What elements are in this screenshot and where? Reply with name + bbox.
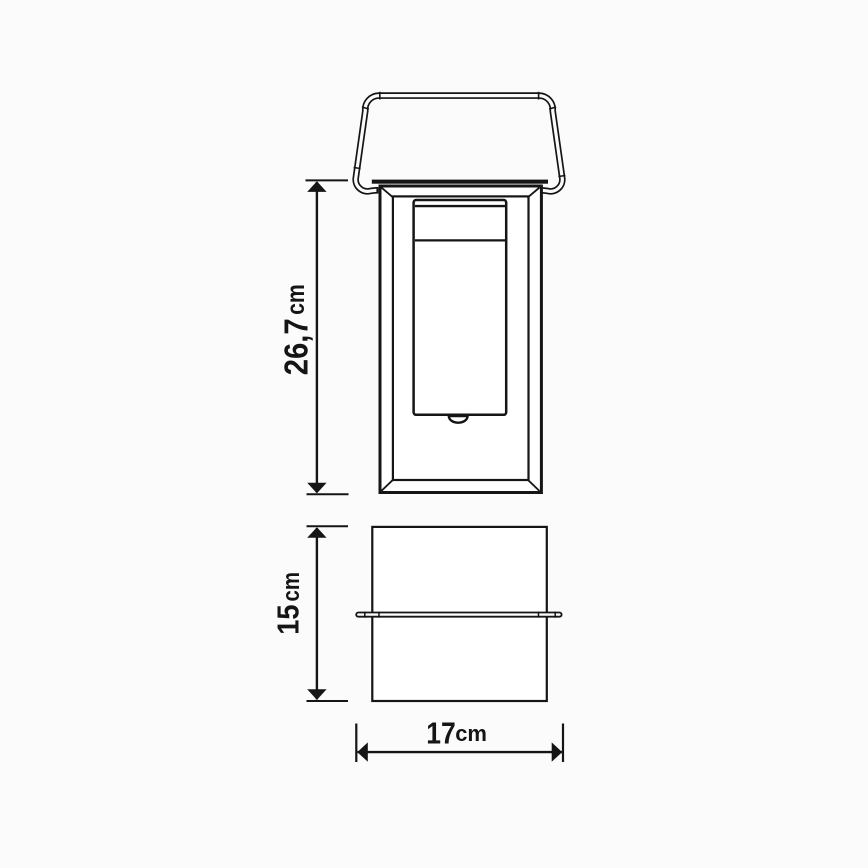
svg-text:cm: cm xyxy=(281,284,309,315)
svg-text:cm: cm xyxy=(277,572,304,601)
svg-text:cm: cm xyxy=(455,721,487,746)
svg-text:17: 17 xyxy=(426,716,455,750)
svg-text:15: 15 xyxy=(272,604,306,634)
svg-text:26,7: 26,7 xyxy=(278,318,315,375)
